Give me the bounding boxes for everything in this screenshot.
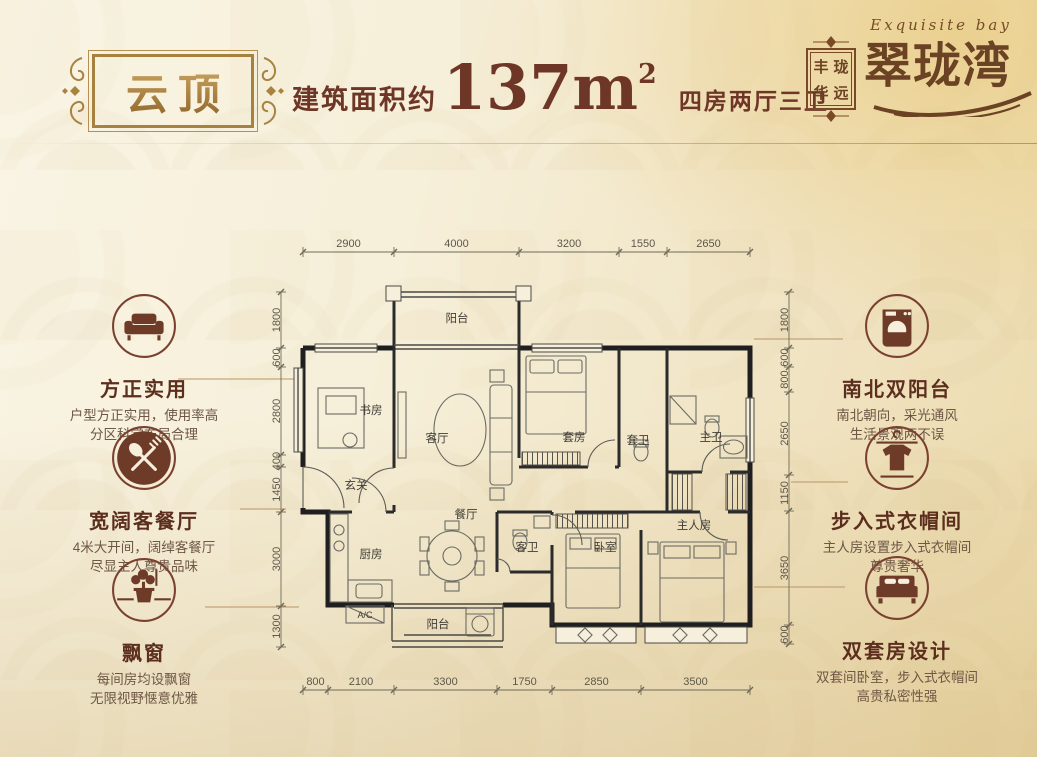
- svg-text:1300: 1300: [271, 614, 283, 638]
- feature-line: 双套间卧室，步入式衣帽间: [795, 669, 999, 688]
- svg-text:客卫: 客卫: [516, 540, 539, 554]
- feature-line: 无限视野惬意优雅: [42, 690, 246, 709]
- svg-text:1450: 1450: [271, 477, 283, 501]
- feature-double-balcony: 南北双阳台 南北朝向，采光通风 生活景观两不误: [795, 293, 999, 445]
- wardrobes: [522, 452, 746, 528]
- svg-text:1800: 1800: [271, 308, 283, 332]
- seal-char: 远: [831, 79, 851, 105]
- feature-title: 宽阔客餐厅: [42, 505, 246, 534]
- svg-text:3200: 3200: [557, 238, 581, 250]
- svg-text:2850: 2850: [584, 676, 608, 688]
- svg-text:600: 600: [779, 348, 791, 366]
- area-value: 137m: [443, 60, 638, 116]
- cutlery-icon: [111, 425, 177, 491]
- feature-title: 双套房设计: [795, 635, 999, 664]
- svg-text:2650: 2650: [696, 238, 720, 250]
- svg-text:1750: 1750: [512, 676, 536, 688]
- headline: 建筑面积约 137m 2 四房两厅三卫: [292, 60, 829, 117]
- svg-text:600: 600: [271, 348, 283, 366]
- svg-text:厨房: 厨房: [360, 548, 383, 561]
- plate-right-ornament: [258, 52, 284, 130]
- area-superscript: 2: [638, 59, 657, 90]
- feature-line: 高贵私密性强: [795, 688, 999, 707]
- svg-text:1800: 1800: [779, 308, 791, 332]
- svg-text:3300: 3300: [433, 676, 457, 688]
- feature-line: 南北朝向，采光通风: [795, 407, 999, 426]
- svg-text:套房: 套房: [563, 431, 586, 444]
- svg-text:2900: 2900: [336, 238, 360, 250]
- feature-squared-layout: 方正实用 户型方正实用，使用率高 分区科学布局合理: [42, 293, 246, 445]
- feature-title: 步入式衣帽间: [795, 505, 999, 534]
- brand-name: 翠珑湾: [864, 41, 1035, 91]
- logo-seal-column: 丰 珑 华 远: [806, 36, 856, 122]
- svg-text:主人房: 主人房: [677, 519, 712, 532]
- washing-machine-icon: [864, 293, 930, 359]
- feature-bay-window: 飘窗 每间房均设飘窗 无限视野惬意优雅: [42, 557, 246, 709]
- unit-name-plate: 云顶: [62, 50, 284, 132]
- balcony-rails: [386, 286, 531, 647]
- poster: 2900400032001550265080021003300175028503…: [0, 0, 1037, 757]
- sweater-icon: [864, 425, 930, 491]
- svg-text:3000: 3000: [271, 547, 283, 571]
- svg-text:600: 600: [779, 625, 791, 643]
- svg-text:2100: 2100: [349, 676, 373, 688]
- logo-seal-frame: 丰 珑 华 远: [806, 48, 856, 110]
- svg-text:1550: 1550: [631, 238, 655, 250]
- svg-text:400: 400: [271, 452, 283, 470]
- plate-inner-frame: 云顶: [92, 54, 254, 128]
- svg-text:卧室: 卧室: [594, 540, 617, 554]
- seal-char: 丰: [811, 53, 831, 79]
- svg-text:2800: 2800: [271, 399, 283, 423]
- svg-text:1150: 1150: [779, 481, 791, 505]
- svg-text:阳台: 阳台: [427, 617, 450, 631]
- seal-bottom-ornament: [809, 110, 853, 122]
- area-prefix: 建筑面积约: [292, 78, 437, 117]
- svg-text:客厅: 客厅: [426, 431, 449, 445]
- feature-title: 南北双阳台: [795, 373, 999, 402]
- svg-text:3650: 3650: [779, 556, 791, 580]
- plate-left-ornament: [62, 52, 88, 130]
- seal-top-ornament: [809, 36, 853, 48]
- svg-text:阳台: 阳台: [446, 311, 469, 325]
- svg-text:书房: 书房: [360, 404, 383, 417]
- svg-text:主卫: 主卫: [700, 431, 723, 444]
- brand-swoosh: [870, 91, 1035, 117]
- unit-name: 云顶: [116, 61, 230, 122]
- svg-text:玄关: 玄关: [345, 478, 368, 492]
- seal-char: 华: [811, 79, 831, 105]
- svg-text:套卫: 套卫: [627, 434, 650, 447]
- feature-title: 飘窗: [42, 637, 246, 666]
- svg-text:3500: 3500: [683, 676, 707, 688]
- svg-text:800: 800: [779, 370, 791, 388]
- feature-line: 4米大开间，阔绰客餐厅: [42, 539, 246, 558]
- developer-logo: Exquisite bay 丰 珑 华 远 翠珑湾: [806, 16, 1024, 122]
- seal-char: 珑: [831, 53, 851, 79]
- svg-text:2650: 2650: [779, 421, 791, 445]
- svg-text:餐厅: 餐厅: [455, 507, 478, 521]
- feature-line: 户型方正实用，使用率高: [42, 407, 246, 426]
- bonsai-icon: [111, 557, 177, 623]
- feature-walk-in-closet: 步入式衣帽间 主人房设置步入式衣帽间 尊贵奢华: [795, 425, 999, 577]
- double-bed-icon: [864, 555, 930, 621]
- feature-line: 每间房均设飘窗: [42, 671, 246, 690]
- svg-text:800: 800: [306, 676, 324, 688]
- feature-double-suite: 双套房设计 双套间卧室，步入式衣帽间 高贵私密性强: [795, 555, 999, 707]
- feature-title: 方正实用: [42, 373, 246, 402]
- feature-dining: 宽阔客餐厅 4米大开间，阔绰客餐厅 尽显主人尊贵品味: [42, 425, 246, 577]
- plate-frame: 云顶: [88, 50, 258, 132]
- logo-english-script: Exquisite bay: [806, 16, 1024, 34]
- svg-text:A/C: A/C: [357, 610, 373, 620]
- sofa-icon: [111, 293, 177, 359]
- svg-text:4000: 4000: [444, 238, 468, 250]
